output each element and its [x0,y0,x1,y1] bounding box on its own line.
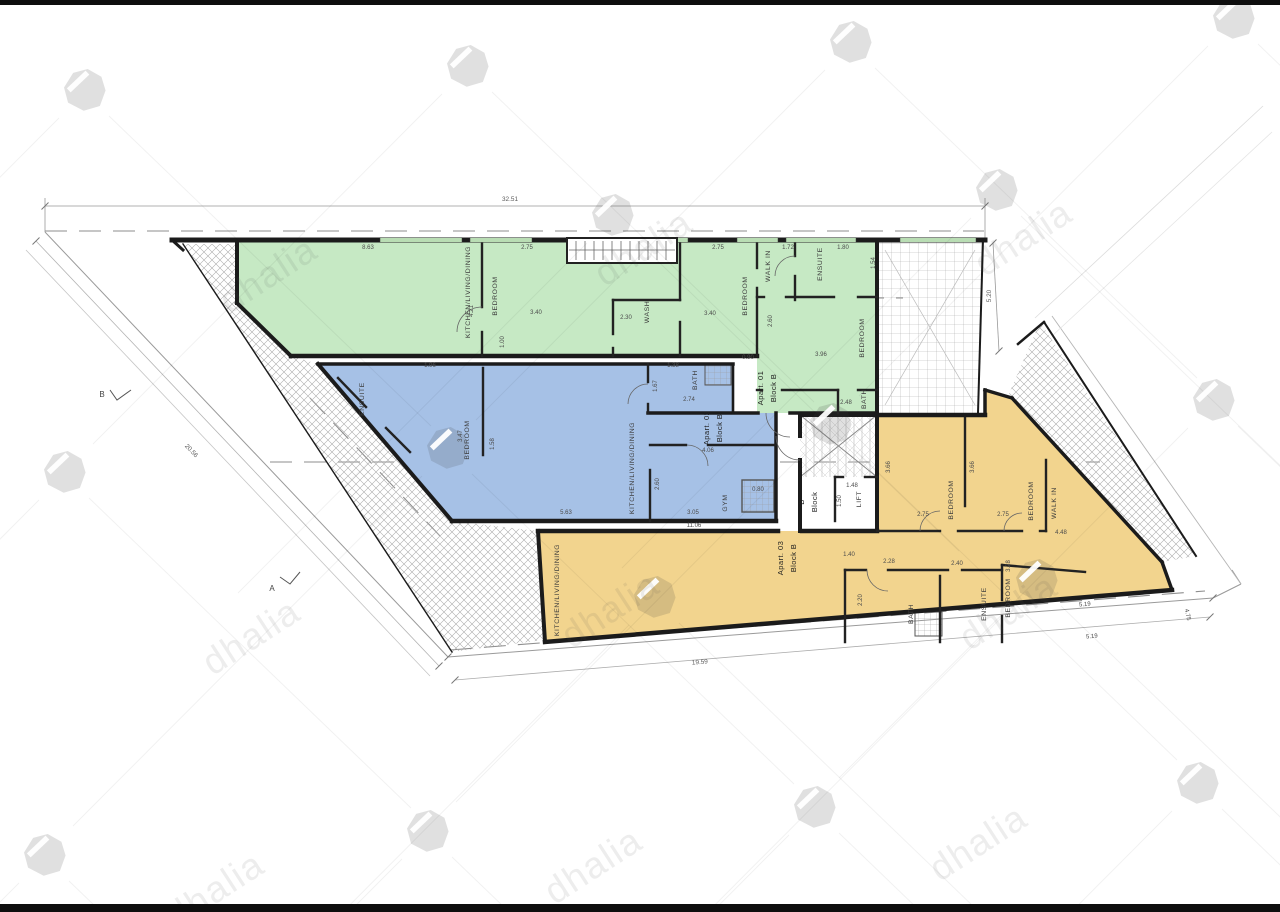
apartment-name-2: Apart. 02 [702,411,711,445]
dimension-label: 5.20 [986,289,993,302]
bottom-border-bar [0,904,1280,912]
boundary-line [1035,106,1263,318]
shower-tray [915,612,942,636]
dimension-label: 1.48 [846,483,858,489]
dimension-label: 32.51 [502,196,518,203]
dimension-label: 2.75 [521,245,533,251]
window-band [380,238,462,243]
dimension-label: 2.74 [683,397,695,403]
core-label: Block [810,492,819,513]
floor-plan-image: KITCHEN/LIVING/DININGBEDROOMWASHBEDROOMW… [0,0,1280,912]
dimension-label: 1.50 [837,495,843,507]
core-label: B [797,499,806,504]
room-label: KITCHEN/LIVING/DINING [554,544,561,636]
room-label: GYM [722,494,729,511]
dimension-label: 2.28 [883,559,895,565]
dimension-label: 19.59 [692,658,709,666]
dimension-label: 1.54 [871,257,877,269]
dimension-label: 5.63 [560,510,572,516]
window-band [737,238,778,243]
dimension-label: 3.96 [815,352,827,358]
gym-store [742,480,774,512]
dimension-label: 2.30 [620,315,632,321]
boundary-line [993,243,999,351]
boundary-line [1052,132,1272,336]
door-swing-arc [776,436,800,460]
room-label: ENSUITE [817,247,824,281]
dimension-label: 8.63 [362,245,374,251]
dimension-label: 4.21 [469,305,475,317]
top-border-bar [0,0,1280,5]
boundary-line [1213,584,1241,598]
dimension-label: 1.58 [490,438,496,450]
room-label: BEDROOM [1005,578,1012,617]
dimension-label: 5.19 [1086,633,1099,640]
dimension-label: 2.40 [951,561,963,567]
dimension-label: 1.40 [843,552,855,558]
room-label: WALK IN [1051,487,1058,519]
room-label: BEDROOM [464,420,471,459]
room-label: ENSUITE [981,587,988,621]
dimension-label: 2.60 [768,315,774,327]
room-label: BATH [908,604,915,624]
recessed-window [567,238,677,263]
room-label: WALK IN [765,250,772,282]
dimension-label: 3.40 [530,310,542,316]
room-label: BEDROOM [742,276,749,315]
room-label: BEDROOM [948,480,955,519]
dimension-label: 5.19 [1079,601,1092,608]
window-band [786,238,856,243]
apartment-name-1: Apart. 01 [756,371,765,405]
dimension-label: 4.75 [1183,608,1191,621]
dimension-label: 3.05 [687,510,699,516]
room-label: ENSUITE [359,382,366,416]
section-marker: A [269,584,275,593]
dimension-label: 20.56 [183,443,199,460]
dimension-label: 4.06 [702,448,714,454]
dimension-label: 1.38 [667,363,679,369]
room-label: LIFT [856,491,863,507]
room-label: WASH [644,301,651,324]
dimension-label: 3.66 [970,461,976,473]
dimension-label: 1.72 [782,245,794,251]
dimension-label: 1.67 [653,380,659,392]
window-band [470,238,532,243]
apartment-name-1: Block B [769,374,778,403]
dimension-label: 0.80 [752,487,764,493]
section-marker: B [99,390,104,399]
room-label: KITCHEN/LIVING/DINING [629,422,636,514]
room-label: BATH [861,389,868,409]
dimension-label: 11.06 [687,523,702,529]
dimension-label: 2.75 [712,245,724,251]
floor-plan-drawing: KITCHEN/LIVING/DININGBEDROOMWASHBEDROOMW… [0,0,1280,912]
dimension-label: 4.48 [1055,530,1067,536]
dimension-label: 2.48 [840,400,852,406]
dimension-label: 1.80 [837,245,849,251]
room-label: BEDROOM [492,276,499,315]
room-label: KITCHEN/LIVING/DINING [465,246,472,338]
room-label: BEDROOM [1028,481,1035,520]
room-label: BATH [692,370,699,390]
apartment-name-3: Apart. 03 [776,541,785,575]
apartment-name-3: Block B [789,544,798,573]
section-marker-arrow [280,572,300,584]
dimension-label: 3.66 [886,461,892,473]
dimension-label: 0.90 [742,355,754,361]
dimension-label: 3.40 [704,311,716,317]
window-band [900,238,976,243]
dimension-label: 3.47 [458,430,464,442]
dimension-label: 1.00 [500,336,506,348]
dimension-label: 2.60 [655,478,661,490]
dimension-label: 2.75 [917,512,929,518]
room-label: BEDROOM [859,318,866,357]
dimension-label: 3.28 [1006,560,1012,572]
dimension-label: 2.20 [858,594,864,606]
dimension-label: 2.75 [997,512,1009,518]
section-marker-arrow [110,390,131,400]
shower-tray [705,365,731,385]
dimension-label: 1.96 [424,363,436,369]
apartment-name-2: Block B [715,414,724,443]
